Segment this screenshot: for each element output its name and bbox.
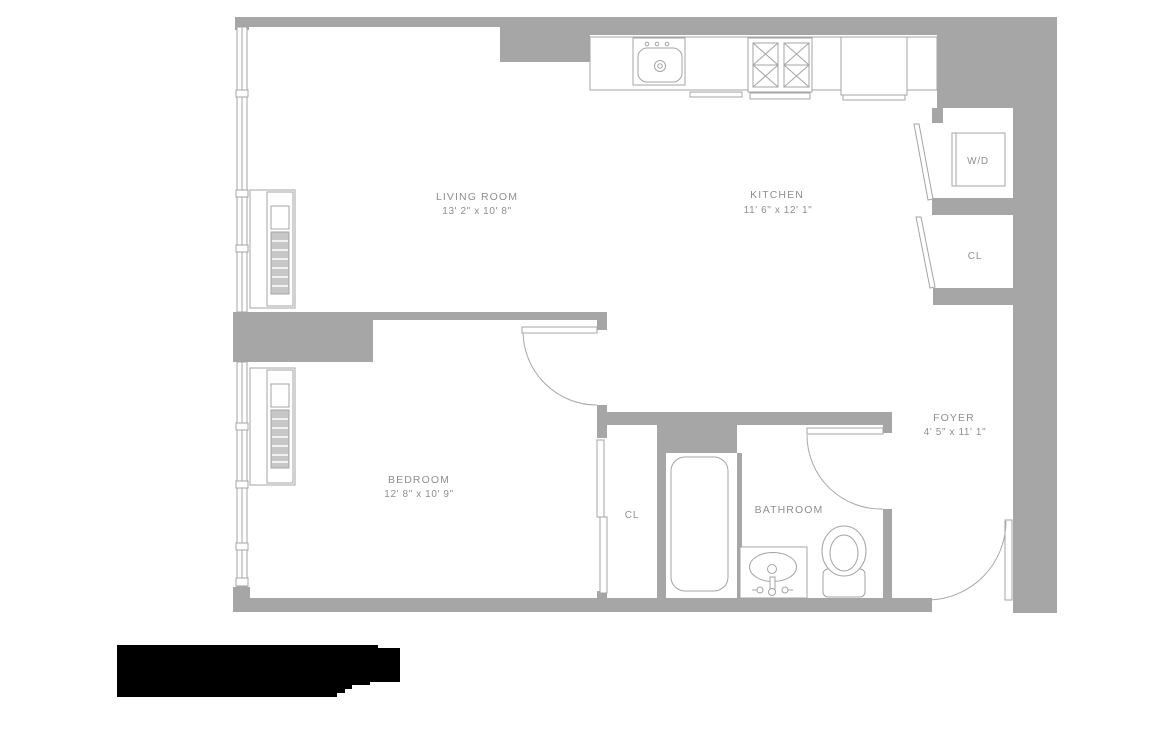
window-mullion xyxy=(236,578,248,586)
living-room-label: LIVING ROOM xyxy=(436,191,518,203)
wall-living-bedroom-divider xyxy=(233,312,607,320)
bedroom-closet-label: CL xyxy=(625,510,639,521)
wall-column-living-kitchen xyxy=(500,17,590,62)
walls xyxy=(233,17,1057,613)
wall-top-living xyxy=(235,17,500,27)
wall-right-column xyxy=(1013,35,1057,613)
toilet xyxy=(822,526,866,597)
toilet-bowl xyxy=(822,526,866,576)
bedroom-dims: 12' 8" x 10' 9" xyxy=(384,489,453,500)
wall-above-tub xyxy=(657,425,737,453)
window-mullion xyxy=(236,245,248,252)
window-mullion xyxy=(236,423,248,430)
bathroom-sink xyxy=(740,547,807,598)
foyer-closet-label: CL xyxy=(968,251,982,262)
bathroom-door xyxy=(807,428,883,509)
oven-handle xyxy=(750,93,810,99)
window-mullion xyxy=(236,90,248,97)
living-room-window xyxy=(236,27,248,312)
window-mullion xyxy=(236,543,248,550)
bedroom-radiator xyxy=(250,368,295,485)
bedroom-label: BEDROOM xyxy=(388,474,450,486)
foyer-dims: 4' 5" x 11' 1" xyxy=(924,427,987,438)
wall-wd-cl-divider xyxy=(932,198,1013,215)
living-room-radiator xyxy=(250,190,295,308)
bedroom-window xyxy=(236,362,248,587)
window-mullion xyxy=(236,190,248,197)
wall-below-cl xyxy=(933,288,1013,305)
foyer-closet-door xyxy=(916,217,935,288)
bathroom-label: BATHROOM xyxy=(755,504,824,516)
living-room-dims: 13' 2" x 10' 8" xyxy=(442,206,511,217)
wall-bottom xyxy=(233,598,932,612)
wall-hall-bathroom-top xyxy=(601,412,892,425)
window-mullion xyxy=(236,481,248,488)
floor-plan: LIVING ROOM 13' 2" x 10' 8" KITCHEN 11' … xyxy=(0,0,1170,750)
wall-bottom-left-stub xyxy=(233,587,250,598)
radiator-knob xyxy=(271,206,289,229)
wall-wd-stub xyxy=(932,108,943,123)
logo-redacted xyxy=(117,645,400,697)
wall-bathroom-east-lower xyxy=(883,509,892,598)
floor-plan-page: LIVING ROOM 13' 2" x 10' 8" KITCHEN 11' … xyxy=(0,0,1170,750)
wall-bedroom-east-stub-top xyxy=(597,320,607,330)
wall-bathroom-east-stub xyxy=(883,425,892,433)
kitchen-dims: 11' 6" x 12' 1" xyxy=(744,205,813,216)
kitchen-sink xyxy=(633,38,685,85)
refrigerator xyxy=(841,37,907,100)
bathtub xyxy=(671,457,728,591)
wall-living-bedroom-block xyxy=(233,320,373,362)
washer-dryer-label: W/D xyxy=(967,156,989,167)
radiator-knob xyxy=(271,384,289,407)
washer-dryer-door xyxy=(914,124,933,200)
entry-door xyxy=(928,520,1012,600)
wall-closet-tub-strip xyxy=(657,453,666,598)
bedroom-closet-doors xyxy=(597,440,607,593)
foyer-label: FOYER xyxy=(933,412,975,424)
stove xyxy=(748,38,812,99)
bedroom-door xyxy=(522,327,597,405)
dishwasher xyxy=(690,92,742,97)
kitchen-label: KITCHEN xyxy=(750,189,804,201)
